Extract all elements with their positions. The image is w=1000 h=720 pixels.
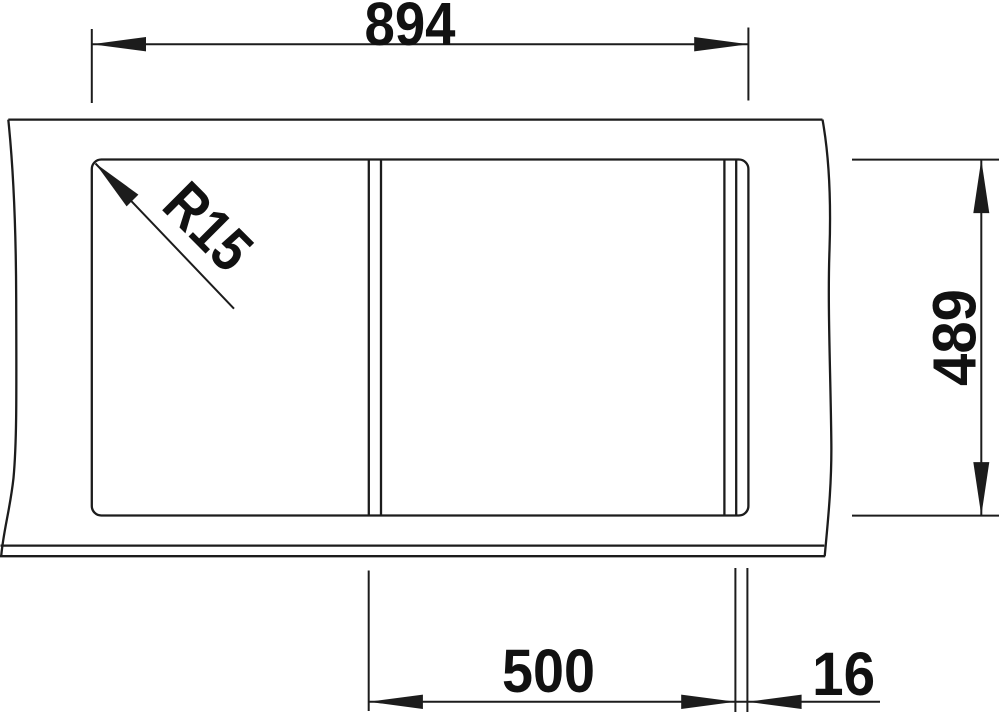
svg-text:500: 500 [502, 637, 595, 705]
svg-text:R15: R15 [151, 169, 266, 284]
svg-text:16: 16 [812, 640, 875, 708]
svg-text:894: 894 [365, 0, 456, 58]
svg-text:489: 489 [921, 289, 989, 386]
